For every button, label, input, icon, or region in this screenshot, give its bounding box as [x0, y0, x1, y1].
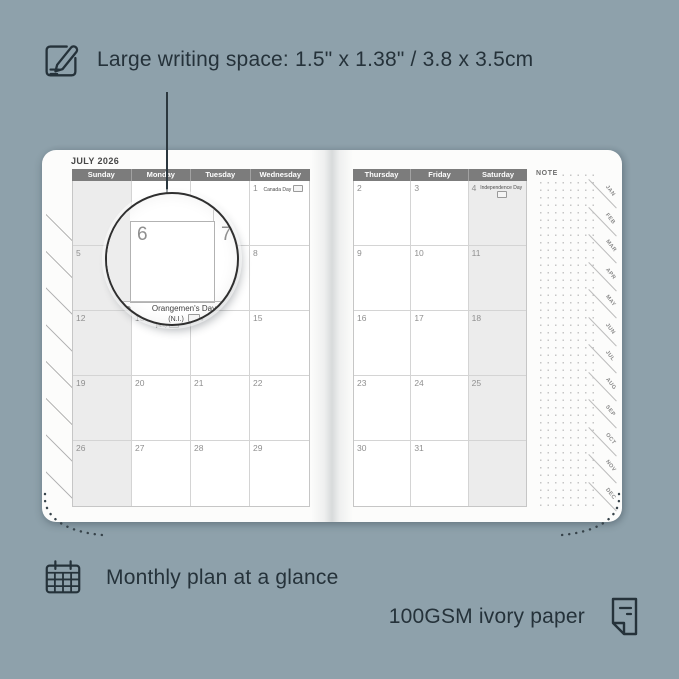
day-header: Thursday [353, 169, 411, 181]
day-number: 5 [73, 246, 81, 258]
month-tab-oct: OCT [594, 428, 620, 456]
grid-line [107, 301, 237, 302]
calendar-cell: 8 [250, 246, 309, 311]
tab-label: FEB [604, 212, 616, 225]
day-number: 17 [411, 311, 423, 323]
calendar-cell: 28 [191, 441, 250, 506]
holiday-label: Independence Day [476, 185, 526, 201]
day-header: Sunday [72, 169, 132, 181]
large-writing-space-text: Large writing space: 1.5" x 1.38" / 3.8 … [97, 48, 533, 72]
month-tab-nov: NOV [594, 455, 620, 483]
day-number: 30 [354, 441, 366, 453]
day-number: 26 [73, 441, 85, 453]
bottom-right-annotation: 100GSM ivory paper [389, 594, 645, 640]
month-tabs: JANFEBMARAPRMAYJUNJULAUGSEPOCTNOVDEC [594, 180, 620, 510]
month-tab-feb: FEB [594, 208, 620, 236]
day-number: 18 [469, 311, 481, 323]
day-number: 4 [469, 181, 477, 193]
day-header: Friday [411, 169, 469, 181]
calendar-cell: 11 [469, 246, 526, 311]
paper-icon [601, 594, 645, 640]
day-number: 20 [132, 376, 144, 388]
day-number: 24 [411, 376, 423, 388]
magnified-day: 6 [137, 224, 148, 246]
day-number: 2 [354, 181, 362, 193]
day-number: 9 [354, 246, 362, 258]
tab-label: JUN [604, 322, 616, 335]
hatch-marks [46, 212, 72, 508]
month-tab-may: MAY [594, 290, 620, 318]
day-number: 21 [191, 376, 203, 388]
day-number: 23 [354, 376, 366, 388]
day-number: 10 [411, 246, 423, 258]
right-calendar: ThursdayFridaySaturday234Independence Da… [353, 169, 527, 507]
day-number: 19 [73, 376, 85, 388]
calendar-cell: 9 [354, 246, 411, 311]
paper-weight-text: 100GSM ivory paper [389, 605, 585, 629]
tab-label: APR [604, 267, 617, 281]
month-tab-mar: MAR [594, 235, 620, 263]
month-tab-jun: JUN [594, 318, 620, 346]
calendar-grid-icon [42, 556, 84, 600]
calendar-cell: 22 [250, 376, 309, 441]
month-tab-jan: JAN [594, 180, 620, 208]
tab-label: AUG [604, 376, 617, 390]
day-number: 12 [73, 311, 85, 323]
tab-label: OCT [604, 432, 617, 446]
calendar-cell: 30 [354, 441, 411, 506]
day-header: Wednesday [251, 169, 311, 181]
calendar-cell: 18 [469, 311, 526, 376]
day-number: 1 [250, 181, 258, 193]
calendar-cell: 27 [132, 441, 191, 506]
day-number: 29 [250, 441, 262, 453]
month-tab-aug: AUG [594, 373, 620, 401]
calendar-cell: 17 [411, 311, 468, 376]
month-tab-apr: APR [594, 263, 620, 291]
calendar-cell: 16 [354, 311, 411, 376]
calendar-cell: 12 [73, 311, 132, 376]
pencil-note-icon [38, 36, 84, 84]
day-number: 8 [250, 246, 258, 258]
corner-curl-right [556, 490, 626, 540]
bottom-left-annotation: Monthly plan at a glance [42, 556, 338, 600]
magnified-below-day: 13 [117, 303, 131, 318]
calendar-cell: 2 [354, 181, 411, 246]
calendar-cell: 10 [411, 246, 468, 311]
flag-icon [497, 191, 507, 198]
calendar-cell: 25 [469, 376, 526, 441]
note-label: NOTE [536, 170, 560, 177]
calendar-cell: 1Canada Day [250, 181, 309, 246]
day-number: 27 [132, 441, 144, 453]
day-number: 15 [250, 311, 262, 323]
calendar-cell [469, 441, 526, 506]
day-header: Tuesday [191, 169, 251, 181]
day-number: 25 [469, 376, 481, 388]
holiday-region: (N.I.) [135, 314, 233, 323]
day-number: 31 [411, 441, 423, 453]
pointer-line [166, 92, 168, 195]
holiday-name: Orangemen's Day [135, 304, 233, 313]
day-number: 28 [191, 441, 203, 453]
day-number: 11 [469, 246, 481, 258]
calendar-cell: 19 [73, 376, 132, 441]
product-image: { "colors":{"background":"#8ea1ab","page… [0, 0, 679, 679]
magnifier-circle: 6 7 13 Orangemen's Day (N.I.) [105, 192, 239, 326]
adjacent-day: 7 [221, 224, 232, 246]
calendar-cell: 15 [250, 311, 309, 376]
flag-icon [188, 314, 200, 322]
calendar-cell: 24 [411, 376, 468, 441]
calendar-cell: 29 [250, 441, 309, 506]
day-header: Monday [132, 169, 192, 181]
day-number: 3 [411, 181, 419, 193]
calendar-cell: 31 [411, 441, 468, 506]
day-header: Saturday [469, 169, 527, 181]
month-tab-sep: SEP [594, 400, 620, 428]
calendar-cell: 3 [411, 181, 468, 246]
holiday-label: Canada Day [258, 185, 309, 194]
month-title: JULY 2026 [71, 156, 119, 166]
monthly-plan-text: Monthly plan at a glance [106, 566, 338, 590]
calendar-cell: 4Independence Day [469, 181, 526, 246]
calendar-cell: 21 [191, 376, 250, 441]
month-tab-jul: JUL [594, 345, 620, 373]
flag-icon [293, 185, 303, 192]
shaded-column-magnified [107, 194, 130, 301]
top-annotation: Large writing space: 1.5" x 1.38" / 3.8 … [38, 36, 533, 84]
corner-curl-left [38, 490, 108, 540]
spine [311, 150, 353, 522]
day-number: 16 [354, 311, 366, 323]
magnified-holiday-label: Orangemen's Day (N.I.) [135, 304, 233, 323]
day-number: 22 [250, 376, 262, 388]
calendar-cell: 20 [132, 376, 191, 441]
calendar-cell: 23 [354, 376, 411, 441]
